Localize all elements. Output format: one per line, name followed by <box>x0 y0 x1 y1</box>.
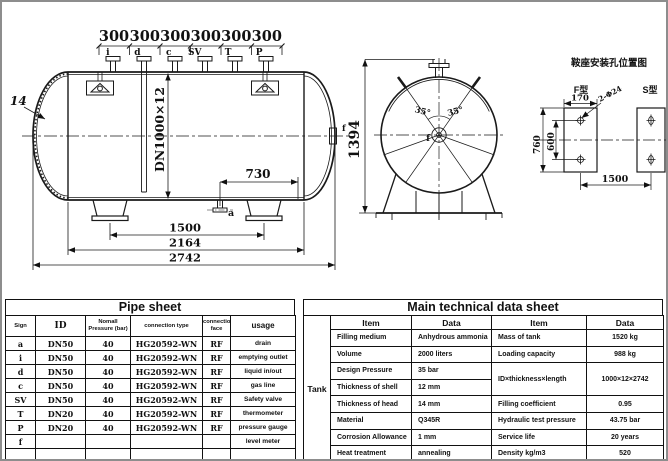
cell: Thickness of shell <box>331 379 412 396</box>
holes-label: 2-Φ24 <box>597 84 624 104</box>
cell: Material <box>331 412 412 429</box>
dim-300-label-3: 300 <box>191 28 221 45</box>
table-row <box>6 449 296 461</box>
cell: 40 <box>86 421 131 435</box>
cell: level meter <box>231 435 296 449</box>
cell: DN50 <box>36 393 86 407</box>
cell: HG20592-WN <box>131 393 203 407</box>
cell: Hydraulic test pressure <box>492 412 587 429</box>
cell: Loading capacity <box>492 346 587 363</box>
main-data-sheet-table: Tank Item Data Item Data Filling mediumA… <box>303 315 664 461</box>
cell: DN50 <box>36 337 86 351</box>
table-row: Corrosion Allowance1 mmService life20 ye… <box>304 429 664 446</box>
cell: HG20592-WN <box>131 337 203 351</box>
cell <box>86 435 131 449</box>
cell: HG20592-WN <box>131 379 203 393</box>
col-pressure: Nomall Pressure (bar) <box>86 316 131 337</box>
cell: 40 <box>86 407 131 421</box>
cell: 1520 kg <box>587 330 664 347</box>
dim-2164-label: 2164 <box>169 236 201 250</box>
cell: thermometer <box>231 407 296 421</box>
cell: DN20 <box>36 407 86 421</box>
cell: gas line <box>231 379 296 393</box>
dim-1500-label: 1500 <box>169 221 201 235</box>
saddle-diagram-title: 鞍座安装孔位置图 <box>571 57 647 69</box>
cell: T <box>6 407 36 421</box>
cell: HG20592-WN <box>131 365 203 379</box>
cell <box>231 449 296 461</box>
cell: RF <box>203 421 231 435</box>
technical-drawing: 300 300 300 300 300 300 i d c SV T P 14 … <box>2 2 666 302</box>
cell: RF <box>203 337 231 351</box>
dim-300-label-5: 300 <box>252 28 282 45</box>
top-nozzles <box>106 57 273 73</box>
lifting-lug-right <box>252 72 279 95</box>
dim-300-label-4: 300 <box>221 28 251 45</box>
cell: drain <box>231 337 296 351</box>
dim-600-label: 600 <box>547 132 557 151</box>
cell: 988 kg <box>587 346 664 363</box>
table-row: Volume2000 litersLoading capacity988 kg <box>304 346 664 363</box>
cell <box>36 449 86 461</box>
cell: RF <box>203 379 231 393</box>
cell: DN50 <box>36 365 86 379</box>
cell: 1000×12×2742 <box>587 363 664 396</box>
col-item-left: Item <box>331 316 412 330</box>
dim-1500-saddle-label: 1500 <box>602 174 629 185</box>
cell: 35 bar <box>412 363 492 380</box>
cell: RF <box>203 407 231 421</box>
nozzle-d <box>137 57 151 73</box>
cell: Q345R <box>412 412 492 429</box>
cell: Mass of tank <box>492 330 587 347</box>
center-nozzle-label: f <box>426 134 431 144</box>
table-row: Thickness of head14 mmFilling coefficien… <box>304 396 664 413</box>
pipe-sheet-title: Pipe sheet <box>5 299 295 315</box>
dim-170-label: 170 <box>571 94 589 104</box>
nozzle-label-i: i <box>106 48 110 58</box>
shell-spec-label: DN1000×12 <box>152 87 167 172</box>
table-row: TDN2040HG20592-WNRFthermometer <box>6 407 296 421</box>
cell <box>131 435 203 449</box>
cell: 20 years <box>587 429 664 446</box>
cell: 520 <box>587 446 664 461</box>
cell: Thickness of head <box>331 396 412 413</box>
cell: RF <box>203 351 231 365</box>
cell: 2000 liters <box>412 346 492 363</box>
cell: c <box>6 379 36 393</box>
cell: DN50 <box>36 351 86 365</box>
col-data-right: Data <box>587 316 664 330</box>
cell <box>86 449 131 461</box>
cell: i <box>6 351 36 365</box>
cell: 40 <box>86 351 131 365</box>
head-thickness-label: 14 <box>10 94 27 108</box>
cell: P <box>6 421 36 435</box>
nozzle-p <box>259 57 273 73</box>
main-data-sheet: Main technical data sheet Tank Item Data… <box>303 299 663 461</box>
holes-leader <box>582 103 602 118</box>
angle-label-left: 35° <box>413 105 431 119</box>
col-sign: Sign <box>6 316 36 337</box>
cell: Filling medium <box>331 330 412 347</box>
nozzle-label-p: P <box>256 48 263 58</box>
cell <box>203 435 231 449</box>
pipe-sheet-header-row: Sign ID Nomall Pressure (bar) connection… <box>6 316 296 337</box>
dip-tube <box>142 72 147 192</box>
cell: Anhydrous ammonia <box>412 330 492 347</box>
cell: HG20592-WN <box>131 407 203 421</box>
table-row: Heat treatmentannealingDensity kg/m3520 <box>304 446 664 461</box>
nozzle-a-label: a <box>228 208 234 219</box>
saddle-left <box>92 200 128 221</box>
nozzle-label-sv: SV <box>188 48 202 58</box>
cell: RF <box>203 393 231 407</box>
cell <box>36 435 86 449</box>
nozzle-label-t: T <box>225 48 232 58</box>
pipe-sheet-table: Sign ID Nomall Pressure (bar) connection… <box>5 315 296 461</box>
col-id: ID <box>36 316 86 337</box>
cell: 40 <box>86 337 131 351</box>
cell: Design Pressure <box>331 363 412 380</box>
dim-300-label-0: 300 <box>99 28 129 45</box>
nozzle-sv <box>198 57 212 73</box>
nozzle-label-c: c <box>166 48 172 58</box>
cell: 40 <box>86 379 131 393</box>
dim-730 <box>220 177 298 206</box>
dim-730-label: 730 <box>245 167 270 181</box>
col-connection-face: connection face <box>203 316 231 337</box>
cell: SV <box>6 393 36 407</box>
cell: f <box>6 435 36 449</box>
tank-end-view <box>359 58 506 220</box>
table-row: MaterialQ345RHydraulic test pressure43.7… <box>304 412 664 429</box>
cell: Service life <box>492 429 587 446</box>
table-row: Design Pressure35 barID×thickness×length… <box>304 363 664 380</box>
drawing-sheet: 300 300 300 300 300 300 i d c SV T P 14 … <box>0 0 668 461</box>
nozzle-i <box>106 57 120 73</box>
cell: liquid in/out <box>231 365 296 379</box>
cell: HG20592-WN <box>131 351 203 365</box>
cell: emptying outlet <box>231 351 296 365</box>
cell <box>203 449 231 461</box>
cell: d <box>6 365 36 379</box>
cell: DN20 <box>36 421 86 435</box>
cell: Volume <box>331 346 412 363</box>
pipe-sheet: Pipe sheet Sign ID Nomall Pressure (bar)… <box>5 299 295 461</box>
table-row: cDN5040HG20592-WNRFgas line <box>6 379 296 393</box>
cell: Heat treatment <box>331 446 412 461</box>
table-row: PDN2040HG20592-WNRFpressure gauge <box>6 421 296 435</box>
cell: 1 mm <box>412 429 492 446</box>
dim-1394-label: 1394 <box>347 120 363 159</box>
cell: 12 mm <box>412 379 492 396</box>
cell: 14 mm <box>412 396 492 413</box>
cell: a <box>6 337 36 351</box>
nozzle-label-d: d <box>134 48 141 58</box>
nozzle-c <box>168 57 182 73</box>
main-data-sheet-title: Main technical data sheet <box>303 299 663 315</box>
cell: Filling coefficient <box>492 396 587 413</box>
cell: 40 <box>86 365 131 379</box>
cell: DN50 <box>36 379 86 393</box>
dim-2742-label: 2742 <box>169 251 201 265</box>
angle-label-right: 35° <box>446 105 464 119</box>
col-connection-type: connection type <box>131 316 203 337</box>
cell: annealing <box>412 446 492 461</box>
cell: 43.75 bar <box>587 412 664 429</box>
dim-1394 <box>359 60 435 214</box>
table-row: aDN5040HG20592-WNRFdrain <box>6 337 296 351</box>
group-label-tank: Tank <box>304 316 331 461</box>
cell: pressure gauge <box>231 421 296 435</box>
cell <box>131 449 203 461</box>
table-row: flevel meter <box>6 435 296 449</box>
table-row: Filling mediumAnhydrous ammoniaMass of t… <box>304 330 664 347</box>
main-sheet-header-row: Tank Item Data Item Data <box>304 316 664 330</box>
saddle-right <box>246 200 282 221</box>
saddle-diagram-labels: 鞍座安装孔位置图 F型 S型 170 2-Φ24 760 600 1500 <box>533 57 658 185</box>
col-usage: usage <box>231 316 296 337</box>
cell: ID×thickness×length <box>492 363 587 396</box>
table-row: SVDN5040HG20592-WNRFSafety valve <box>6 393 296 407</box>
dim-300-label-2: 300 <box>160 28 190 45</box>
cell: Corrosion Allowance <box>331 429 412 446</box>
col-item-right: Item <box>492 316 587 330</box>
cell: RF <box>203 365 231 379</box>
cell: Density kg/m3 <box>492 446 587 461</box>
dim-760-label: 760 <box>533 135 543 154</box>
side-view-labels: 300 300 300 300 300 300 i d c SV T P 14 … <box>10 28 347 265</box>
nozzle-t <box>228 57 242 73</box>
lifting-lug-left <box>87 72 114 95</box>
dim-300-label-1: 300 <box>130 28 160 45</box>
cell: HG20592-WN <box>131 421 203 435</box>
cell <box>6 449 36 461</box>
cell: 40 <box>86 393 131 407</box>
table-row: dDN5040HG20592-WNRFliquid in/out <box>6 365 296 379</box>
table-row: iDN5040HG20592-WNRFemptying outlet <box>6 351 296 365</box>
cell: Safety valve <box>231 393 296 407</box>
cell: 0.95 <box>587 396 664 413</box>
s-type-label: S型 <box>642 84 657 95</box>
col-data-left: Data <box>412 316 492 330</box>
